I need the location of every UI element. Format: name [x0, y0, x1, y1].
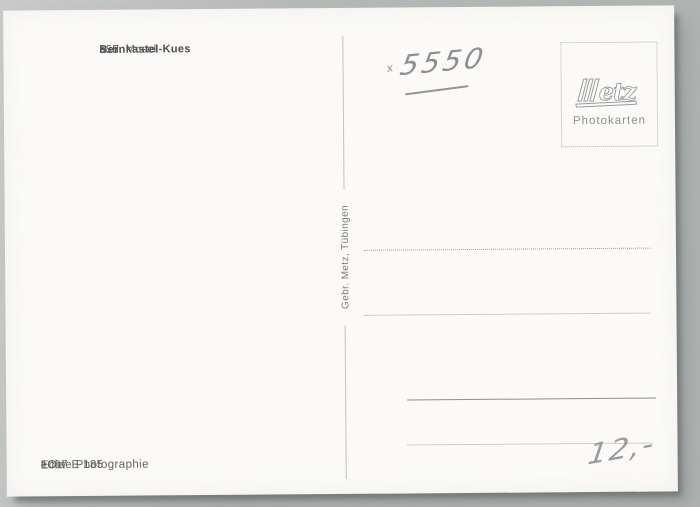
address-line-1	[364, 248, 650, 251]
postcard-back: 555Bernkastel-Kuesa. d. Mosel x 5550 etz…	[3, 5, 678, 496]
address-line-3	[407, 398, 656, 401]
handwritten-price: 12,-	[586, 426, 658, 471]
handwritten-number: 5550	[398, 41, 489, 82]
stamp-box: etz Photokarten	[560, 42, 658, 148]
stamp-box-label: Photokarten	[562, 115, 657, 128]
handwritten-check-mark: x	[385, 61, 394, 75]
metz-logo-icon: etz	[572, 73, 646, 112]
address-line-2	[365, 313, 651, 316]
handwritten-underline	[405, 85, 469, 95]
scan-background: { "postcard": { "header": { "code": "555…	[0, 0, 700, 507]
postcard-caption-subtitle: a. d. Mosel	[99, 43, 156, 55]
footer-suffix: eOe	[41, 459, 64, 471]
divider-line-bottom	[345, 325, 347, 479]
publisher-imprint: Gebr. Metz, Tübingen	[339, 192, 354, 322]
divider-line-top	[342, 36, 344, 189]
